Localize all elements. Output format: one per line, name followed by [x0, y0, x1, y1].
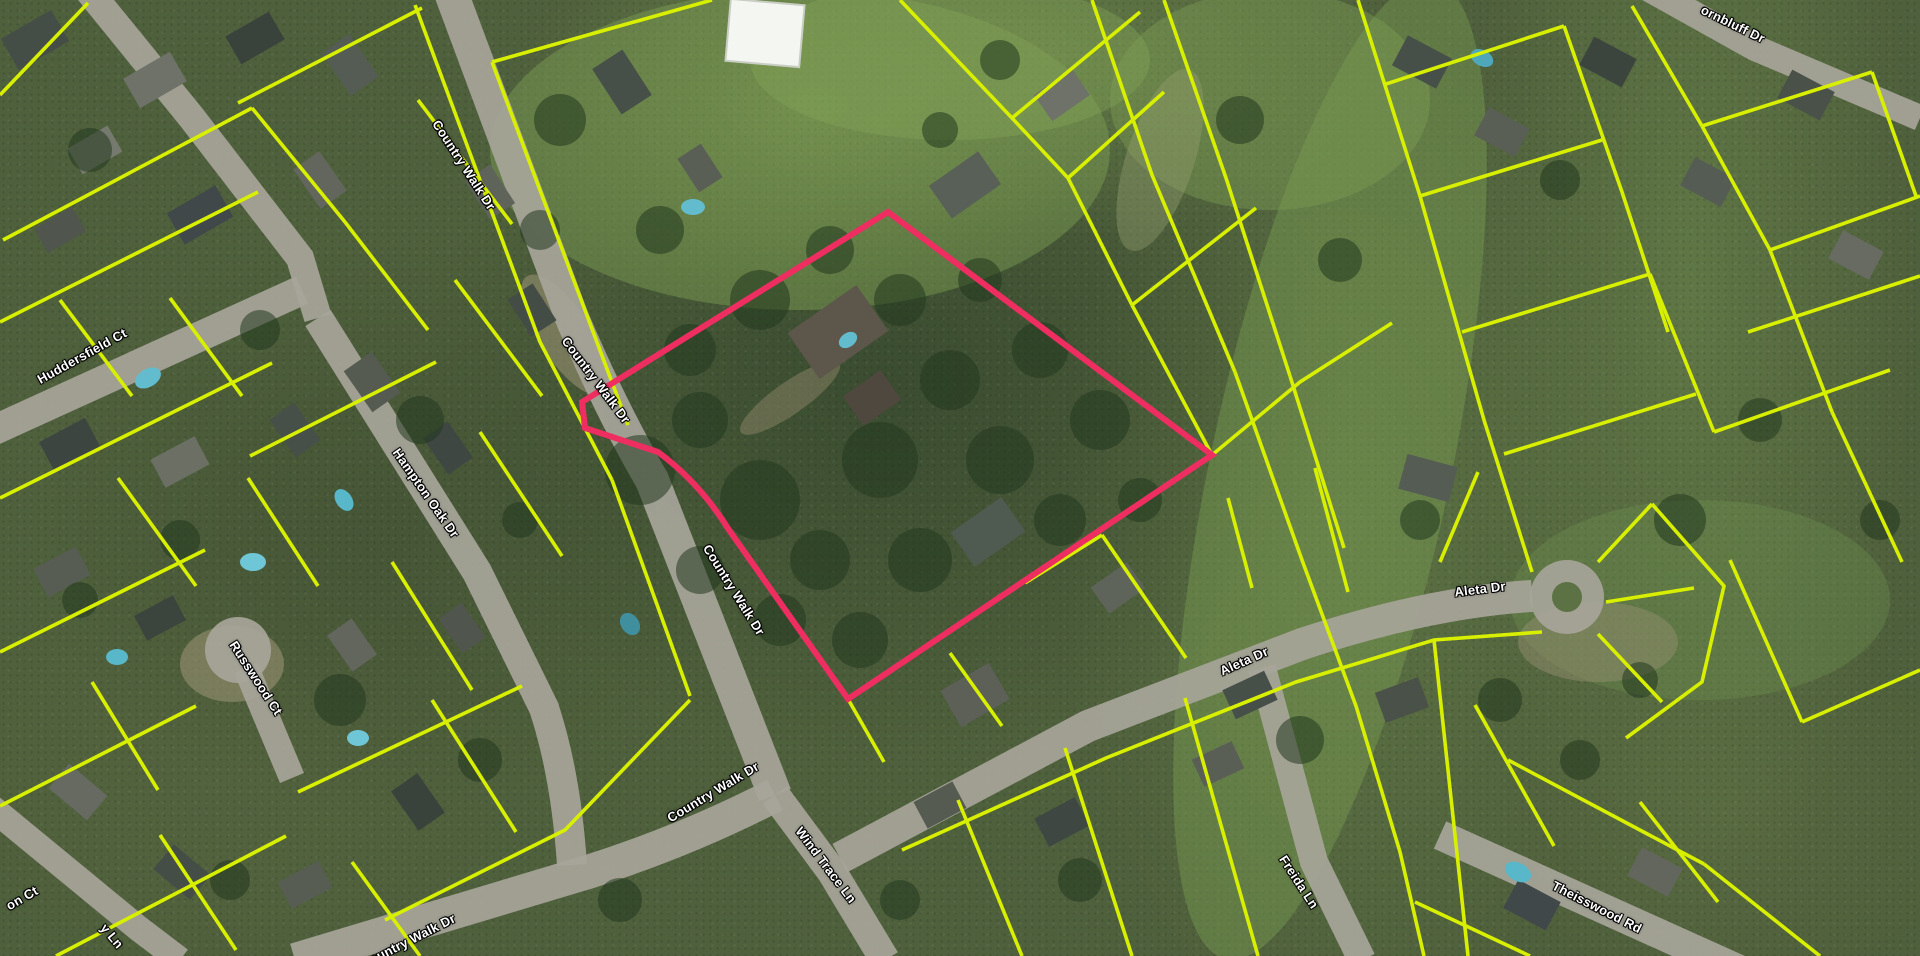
map-canvas[interactable]: Country Walk Dr Country Walk Dr Country …	[0, 0, 1920, 956]
tennis-court	[725, 0, 804, 67]
map-overlay-svg	[0, 0, 1920, 956]
